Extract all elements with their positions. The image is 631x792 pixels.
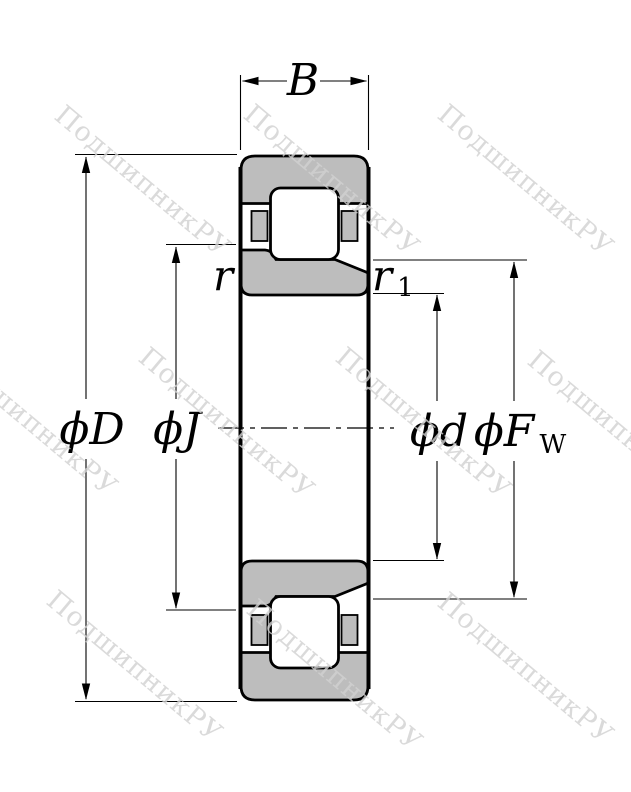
label-phi-F-main: ϕF	[474, 406, 536, 457]
roller	[271, 188, 339, 260]
label-r1-main: r	[372, 251, 395, 300]
label-B: B	[286, 55, 319, 106]
bearing-drawing-page: B ϕD ϕJ ϕd ϕF	[0, 0, 631, 792]
label-r1-sub: 1	[397, 273, 414, 303]
label-phi-F-sub: W	[539, 430, 566, 460]
bearing-diagram: B ϕD ϕJ ϕd ϕF	[0, 0, 631, 792]
cage-bar-left	[252, 211, 268, 241]
